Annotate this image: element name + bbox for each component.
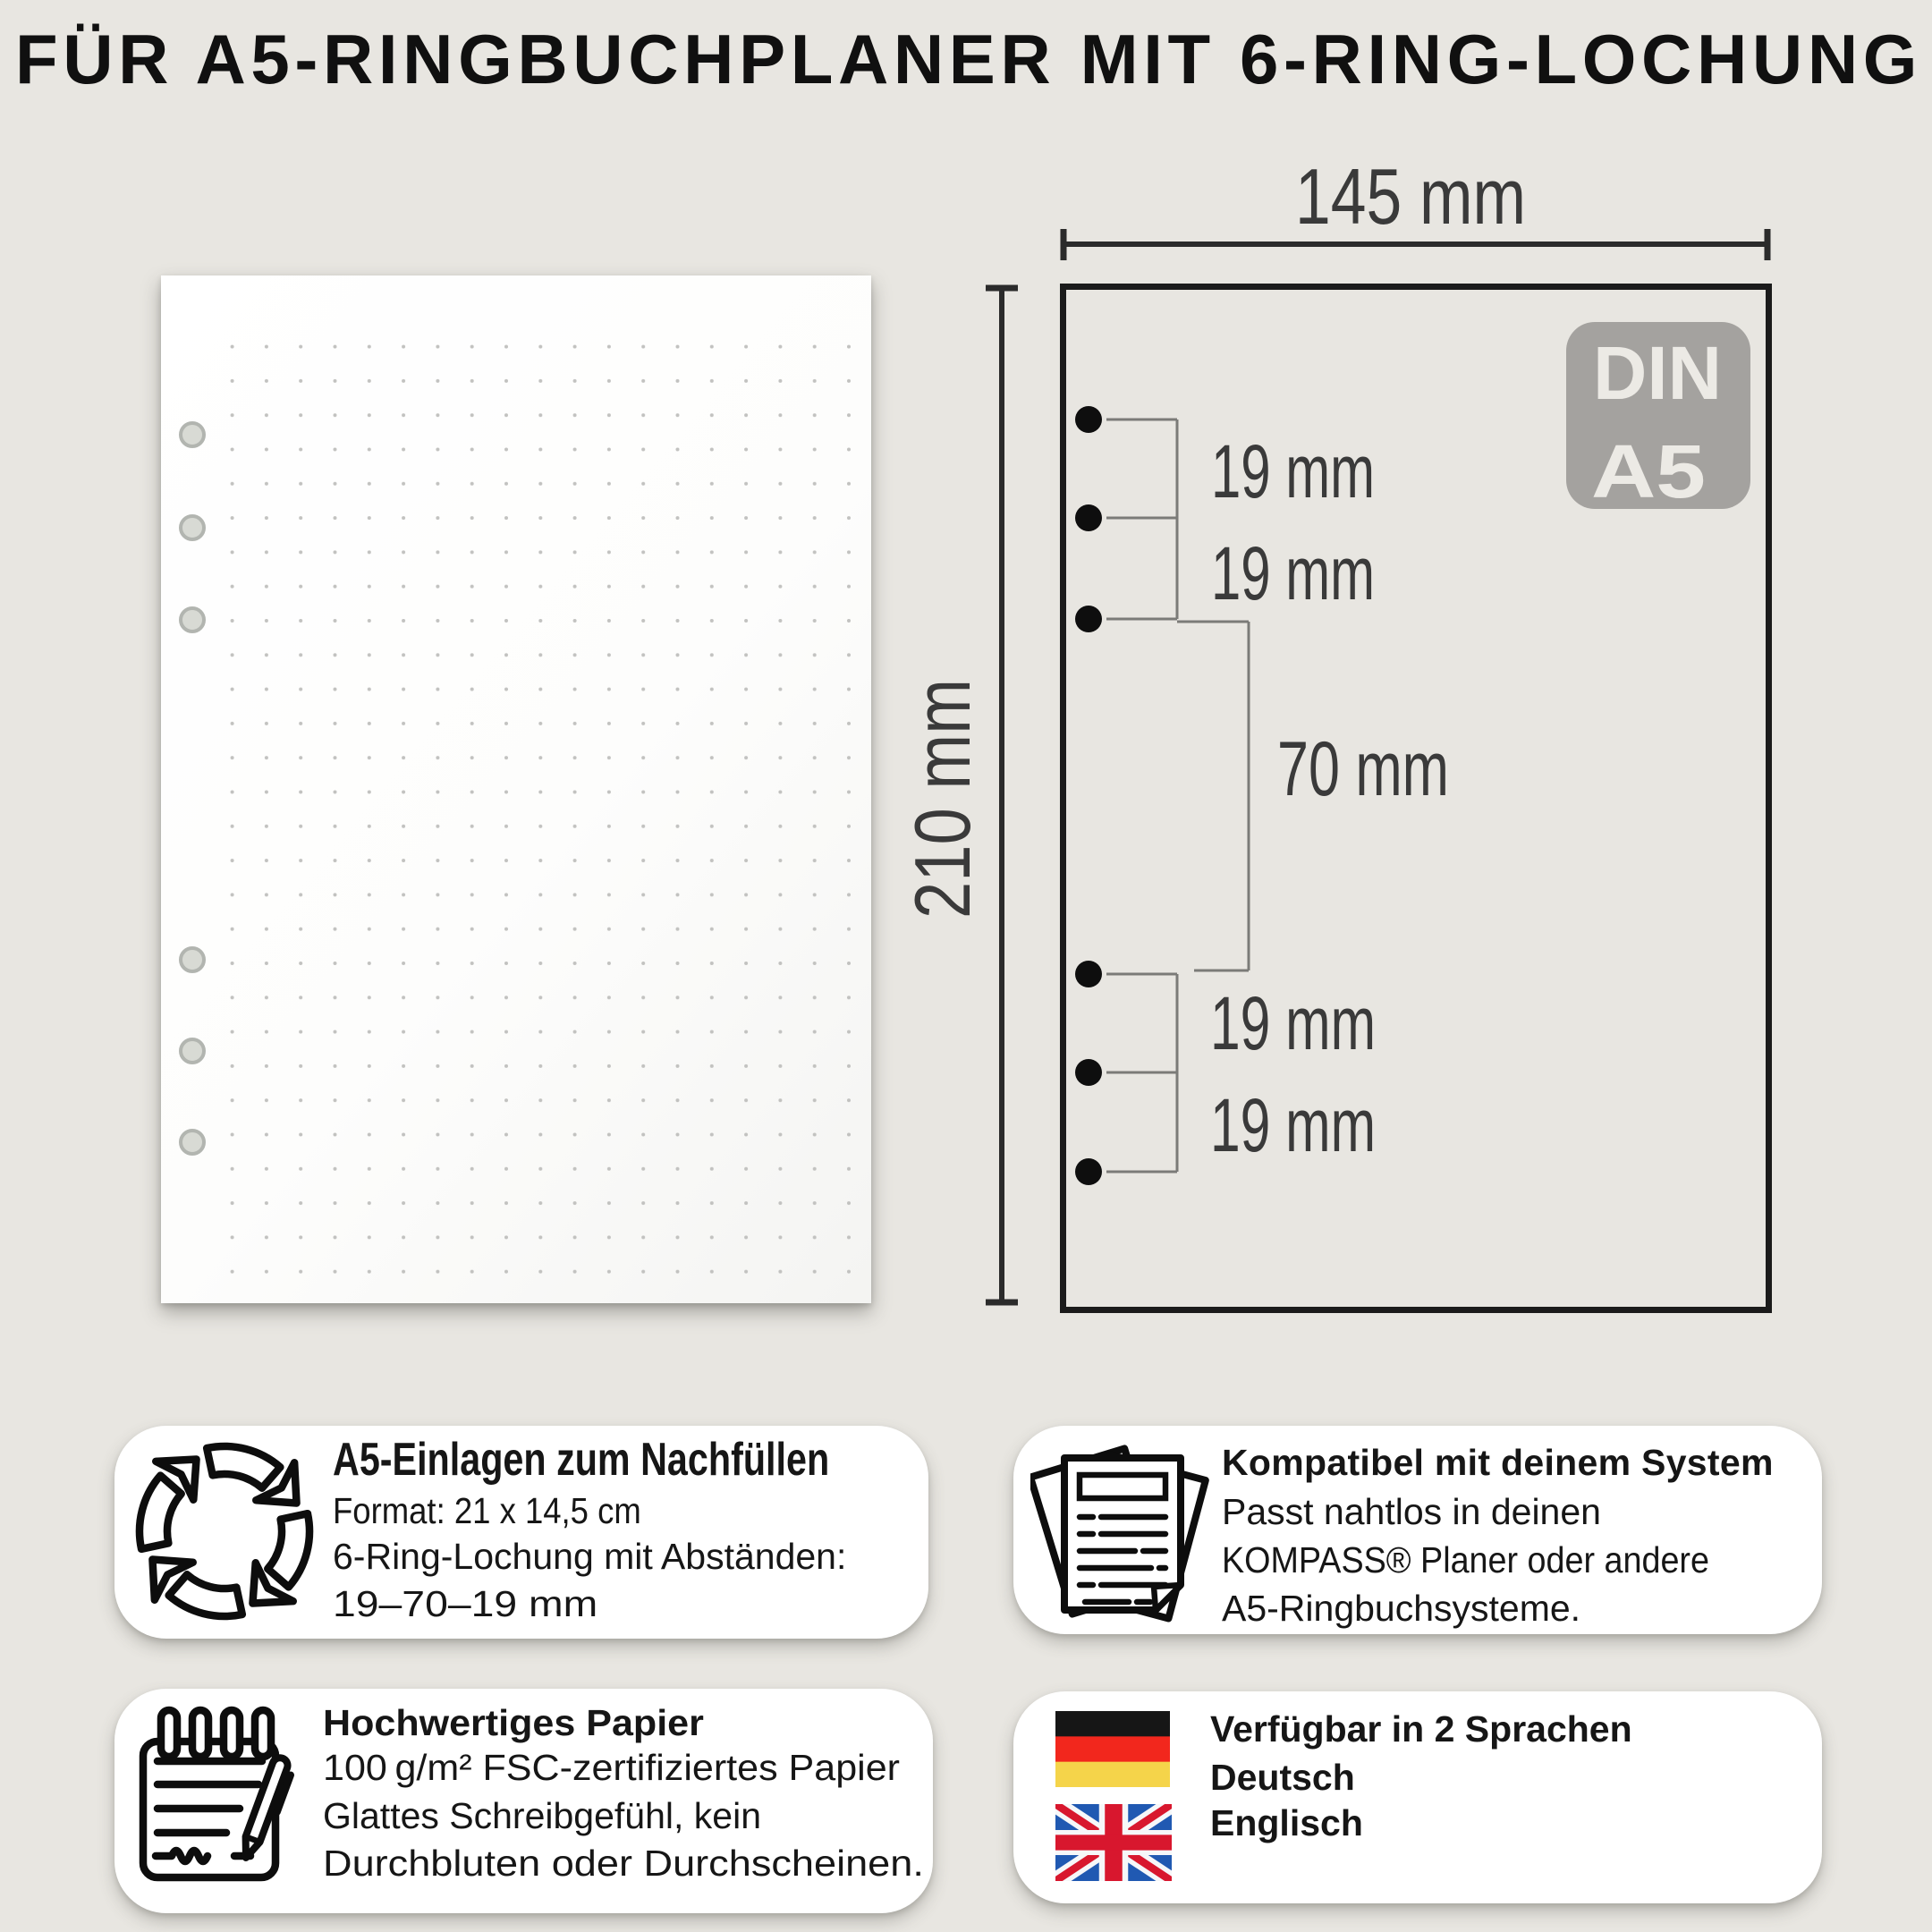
svg-text:A5: A5 bbox=[1591, 429, 1706, 513]
svg-text:70 mm: 70 mm bbox=[1277, 726, 1449, 812]
svg-text:DIN: DIN bbox=[1593, 331, 1722, 415]
svg-text:19 mm: 19 mm bbox=[1211, 531, 1375, 615]
svg-text:19 mm: 19 mm bbox=[1210, 1083, 1376, 1167]
svg-text:210 mm: 210 mm bbox=[898, 679, 987, 919]
svg-text:19 mm: 19 mm bbox=[1210, 981, 1376, 1065]
svg-text:19 mm: 19 mm bbox=[1211, 429, 1375, 513]
svg-text:145 mm: 145 mm bbox=[1295, 152, 1526, 241]
